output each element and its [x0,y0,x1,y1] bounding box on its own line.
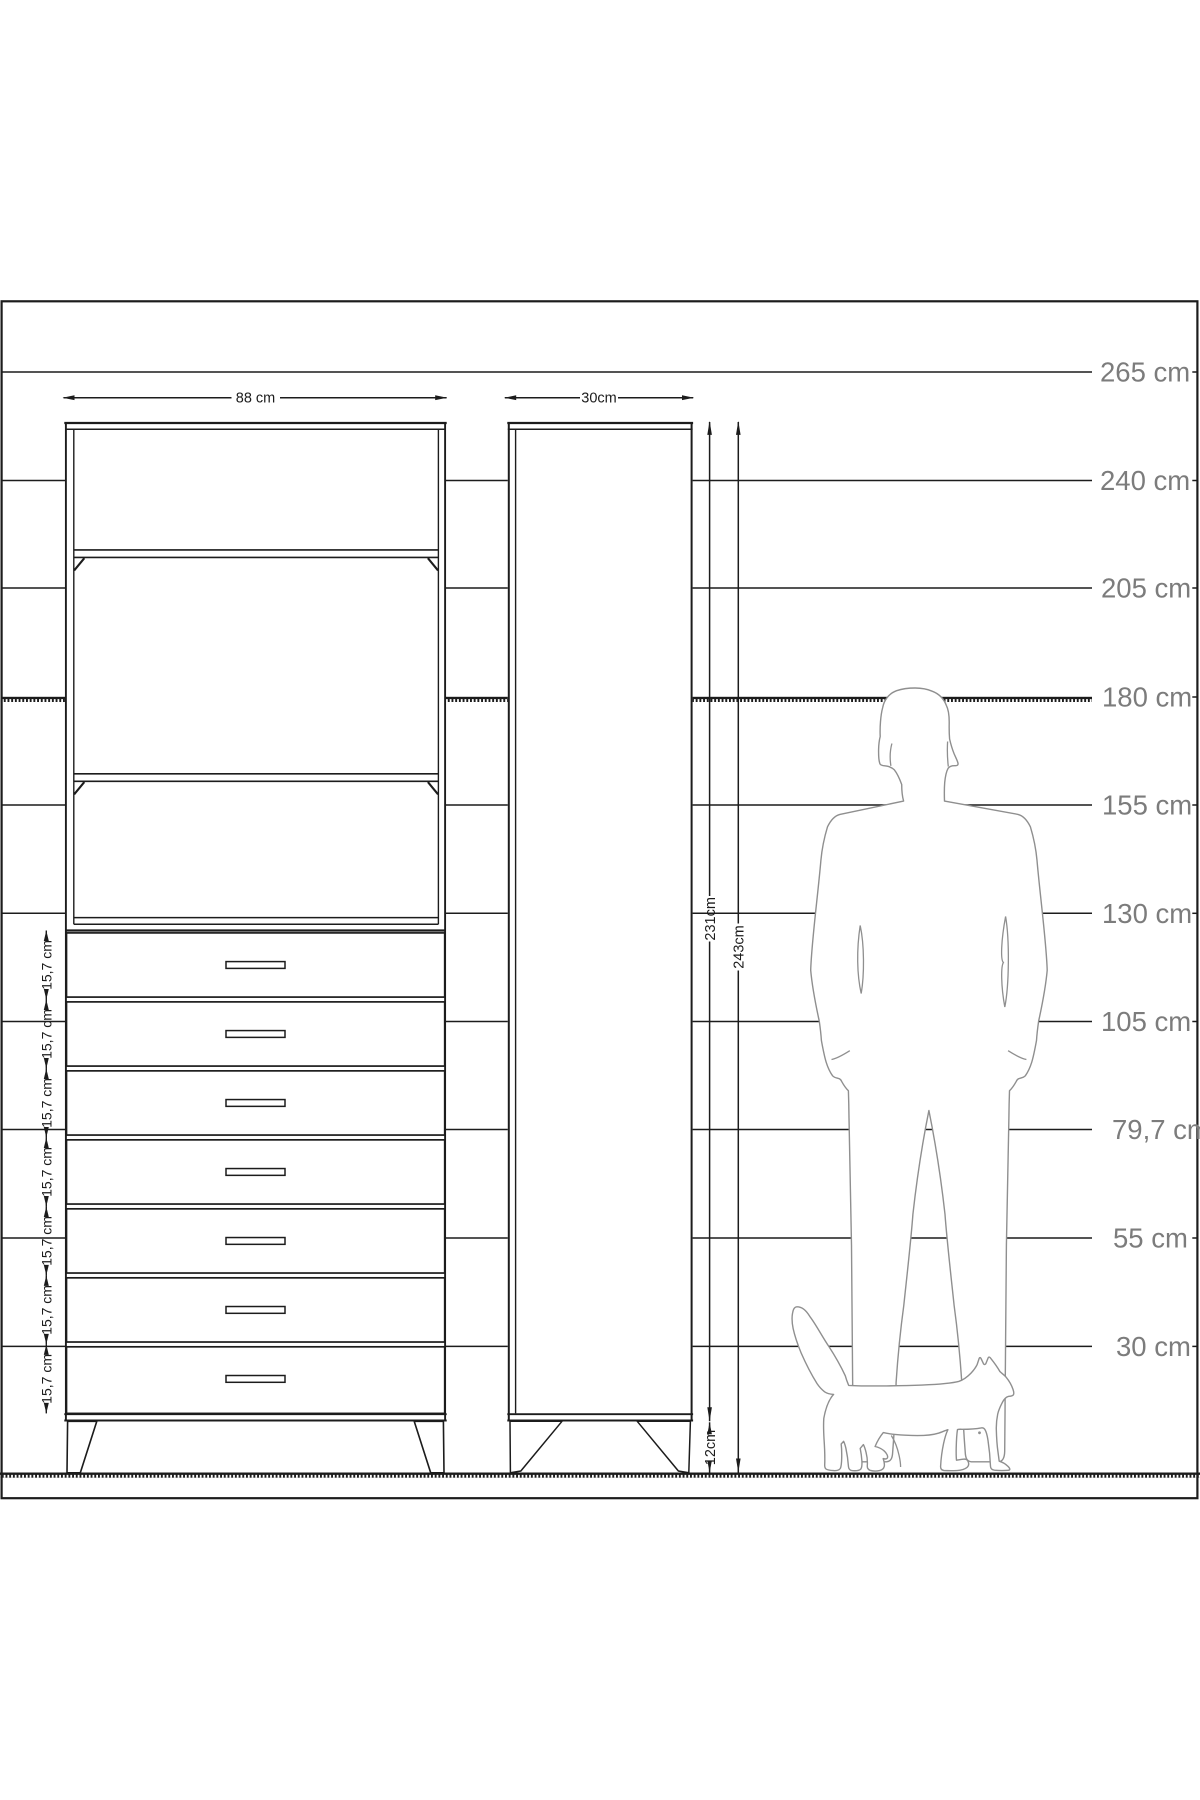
svg-text:130 cm: 130 cm [1102,898,1192,929]
svg-text:265 cm: 265 cm [1100,357,1190,388]
svg-text:88 cm: 88 cm [236,391,276,407]
svg-text:15,7 cm: 15,7 cm [38,1147,54,1197]
svg-text:105 cm: 105 cm [1101,1006,1191,1037]
svg-text:15,7 cm: 15,7 cm [38,1216,54,1266]
svg-text:243cm: 243cm [732,925,748,969]
svg-text:231cm: 231cm [703,897,719,941]
svg-text:30 cm: 30 cm [1116,1331,1191,1362]
svg-text:15,7 cm: 15,7 cm [38,1354,54,1404]
svg-text:15,7 cm: 15,7 cm [38,1078,54,1128]
svg-text:15,7 cm: 15,7 cm [38,940,54,990]
svg-text:15,7 cm: 15,7 cm [38,1009,54,1059]
svg-text:205 cm: 205 cm [1101,573,1191,604]
svg-text:12cm: 12cm [703,1430,719,1465]
svg-text:240 cm: 240 cm [1100,465,1190,496]
svg-text:155 cm: 155 cm [1102,790,1192,821]
svg-text:180 cm: 180 cm [1102,682,1192,713]
svg-text:55 cm: 55 cm [1113,1223,1188,1254]
svg-text:30cm: 30cm [581,391,616,407]
svg-text:15,7 cm: 15,7 cm [38,1285,54,1335]
svg-text:79,7 cm: 79,7 cm [1112,1114,1200,1145]
